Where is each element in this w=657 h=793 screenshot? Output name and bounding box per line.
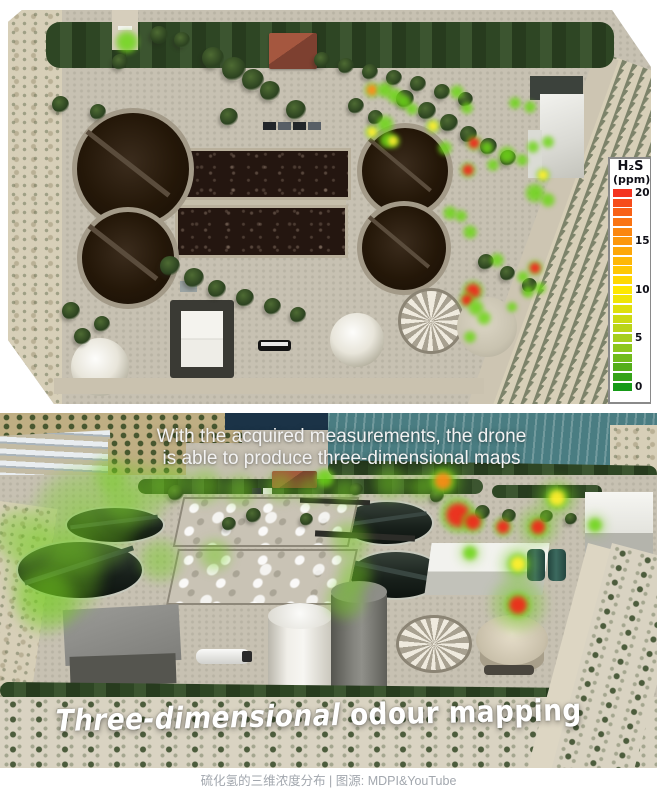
- legend-row: [613, 207, 648, 217]
- legend-color-cell: [613, 315, 632, 323]
- heatmap-overlay: [8, 10, 651, 404]
- legend-tick-label: 10: [635, 286, 650, 294]
- heat-spot: [323, 578, 367, 622]
- legend-color-cell: [613, 286, 632, 294]
- heat-spot: [489, 252, 505, 268]
- satellite-heatmap-figure: H₂S (ppm) 20151050: [8, 10, 651, 404]
- heat-spot: [497, 145, 517, 165]
- article-figure-page: H₂S (ppm) 20151050 With the acquired mea…: [0, 0, 657, 793]
- video-subtitle: With the acquired measurements, the dron…: [40, 426, 643, 470]
- legend-color-cell: [613, 257, 632, 265]
- legend-tick-label: 5: [635, 334, 642, 342]
- heat-spot: [114, 29, 140, 55]
- legend-color-cell: [613, 363, 632, 371]
- legend-color-cell: [613, 344, 632, 352]
- heat-spot: [541, 135, 555, 149]
- legend-color-cell: [613, 218, 632, 226]
- heat-spot: [459, 161, 477, 179]
- legend-row: 10: [613, 285, 648, 295]
- heat-spot: [405, 102, 419, 116]
- legend-row: [613, 246, 648, 256]
- legend-row: [613, 217, 648, 227]
- heat-spot: [437, 140, 453, 156]
- heat-spot: [535, 167, 551, 183]
- legend-color-cell: [613, 334, 632, 342]
- legend-color-cell: [613, 237, 632, 245]
- legend-color-cell: [613, 208, 632, 216]
- legend-tick-label: 15: [635, 237, 650, 245]
- heat-spot: [425, 118, 441, 134]
- legend-tick-label: 0: [635, 383, 642, 391]
- legend-row: [613, 324, 648, 334]
- heat-spot: [185, 466, 225, 506]
- legend-color-cell: [613, 189, 632, 197]
- heat-spot: [462, 545, 478, 561]
- h2s-legend: H₂S (ppm) 20151050: [608, 157, 651, 404]
- legend-row: [613, 304, 648, 314]
- heat-spot: [503, 590, 533, 620]
- heat-spot: [460, 101, 474, 115]
- heat-spot: [480, 141, 494, 155]
- heat-spot: [544, 485, 570, 511]
- legend-tick-label: 20: [635, 189, 650, 197]
- heat-spot: [454, 209, 468, 223]
- heat-spot: [516, 270, 530, 284]
- legend-row: [613, 372, 648, 382]
- heat-spot: [197, 537, 233, 573]
- heat-spot: [492, 516, 514, 538]
- legend-row: [613, 353, 648, 363]
- heat-spot: [136, 536, 184, 584]
- video-subtitle-line1: With the acquired measurements, the dron…: [40, 426, 643, 448]
- legend-color-cell: [613, 247, 632, 255]
- heat-spot: [540, 192, 556, 208]
- legend-color-cell: [613, 276, 632, 284]
- video-subtitle-line2: is able to produce three-dimensional map…: [40, 448, 643, 470]
- heat-spot: [508, 96, 522, 110]
- heat-spot: [314, 467, 336, 489]
- heat-spot: [506, 552, 530, 576]
- heat-spot: [533, 281, 547, 295]
- heat-spot: [526, 140, 540, 154]
- legend-row: [613, 343, 648, 353]
- heat-spot: [486, 158, 500, 172]
- legend-row: [613, 314, 648, 324]
- heat-spot: [429, 467, 457, 495]
- video-title-rest: odour mapping: [340, 693, 582, 733]
- legend-color-cell: [613, 228, 632, 236]
- legend-color-cell: [613, 266, 632, 274]
- heat-spot: [523, 100, 537, 114]
- legend-row: [613, 256, 648, 266]
- legend-row: [613, 198, 648, 208]
- heat-spot: [587, 517, 603, 533]
- legend-row: 5: [613, 333, 648, 343]
- aerial-photo-figure: With the acquired measurements, the dron…: [0, 413, 657, 768]
- heat-spot: [11, 569, 79, 637]
- legend-title: H₂S: [613, 160, 648, 174]
- legend-row: [613, 295, 648, 305]
- legend-color-cell: [613, 383, 632, 391]
- heat-spot: [506, 301, 518, 313]
- legend-color-cell: [613, 295, 632, 303]
- legend-unit: (ppm): [613, 174, 648, 186]
- heat-spot: [462, 224, 478, 240]
- legend-row: [613, 266, 648, 276]
- figure-caption: 硫化氢的三维浓度分布 | 图源: MDPI&YouTube: [0, 770, 657, 789]
- legend-row: 15: [613, 236, 648, 246]
- heat-spot: [385, 133, 401, 149]
- heat-spot: [463, 330, 477, 344]
- legend-row: 0: [613, 382, 648, 392]
- heat-spot: [449, 84, 465, 100]
- legend-color-cell: [613, 305, 632, 313]
- heat-spot: [460, 509, 486, 535]
- legend-color-cell: [613, 199, 632, 207]
- heat-spot: [263, 470, 297, 504]
- legend-color-cell: [613, 354, 632, 362]
- heat-spot: [515, 153, 529, 167]
- legend-colorbar: 20151050: [613, 188, 648, 391]
- legend-color-cell: [613, 373, 632, 381]
- heat-spot: [222, 472, 258, 508]
- heat-spot: [476, 310, 492, 326]
- heat-spot: [526, 515, 550, 539]
- legend-row: 20: [613, 188, 648, 198]
- video-title-italic: Three-dimensional: [55, 698, 340, 739]
- heat-spot: [364, 124, 380, 140]
- legend-color-cell: [613, 324, 632, 332]
- legend-row: [613, 362, 648, 372]
